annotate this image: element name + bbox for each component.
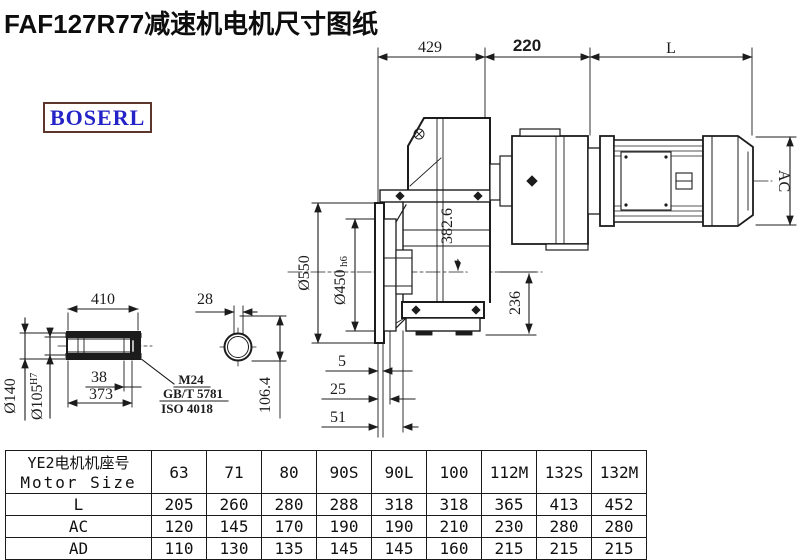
table-row-AC: AC 120 145 170 190 190 210 230 280 280	[6, 516, 647, 538]
cell: 160	[427, 538, 482, 560]
dim-550: Ø550	[296, 255, 313, 291]
col-header: 132M	[592, 451, 647, 494]
note-gbt-5781: GB/T 5781	[163, 386, 223, 401]
cell: 210	[427, 516, 482, 538]
cell: 170	[262, 516, 317, 538]
dim-373: 373	[89, 386, 113, 403]
dim-105: Ø105	[29, 384, 46, 420]
dim-382-6: 382.6	[439, 208, 456, 244]
cell: 190	[372, 516, 427, 538]
col-header: 71	[207, 451, 262, 494]
cell: 110	[152, 538, 207, 560]
dim-429: 429	[418, 39, 442, 56]
cell: 318	[372, 494, 427, 516]
cell: 288	[317, 494, 372, 516]
motor-fan-cover	[703, 136, 753, 226]
cell: 280	[537, 516, 592, 538]
cell: 413	[537, 494, 592, 516]
dim-25: 25	[330, 381, 346, 398]
table-header-en: Motor Size	[6, 473, 151, 492]
cell: 135	[262, 538, 317, 560]
col-header: 80	[262, 451, 317, 494]
col-header: 100	[427, 451, 482, 494]
col-header: 90S	[317, 451, 372, 494]
dim-28: 28	[197, 291, 213, 308]
hollow-shaft-view	[67, 332, 140, 359]
r77-input-unit	[490, 129, 588, 250]
dim-140: Ø140	[2, 378, 19, 414]
dim-51: 51	[330, 409, 346, 426]
cell: 145	[317, 538, 372, 560]
dim-5: 5	[338, 353, 346, 370]
cell: 280	[592, 516, 647, 538]
dim-106-4: 106.4	[257, 377, 274, 413]
table-row-AD: AD 110 130 135 145 145 160 215 215 215	[6, 538, 647, 560]
col-header: 63	[152, 451, 207, 494]
note-iso-4018: ISO 4018	[161, 401, 213, 416]
dim-220: 220	[513, 36, 541, 55]
col-header: 132S	[537, 451, 592, 494]
dimension-extension-lines	[20, 48, 796, 437]
cell: 215	[592, 538, 647, 560]
shaft-section-view	[225, 334, 252, 361]
cell: 215	[482, 538, 537, 560]
dim-AC: AC	[775, 170, 792, 192]
cell: 205	[152, 494, 207, 516]
cell: 260	[207, 494, 262, 516]
cell: 365	[482, 494, 537, 516]
technical-drawing: 429 220 L AC Ø550 Ø450 h6 382.6 236 5 25…	[0, 0, 800, 460]
table-header-row: YE2电机机座号 Motor Size 63 71 80 90S 90L 100…	[6, 451, 647, 494]
dimension-lines	[25, 57, 790, 427]
cell: 145	[207, 516, 262, 538]
dim-410: 410	[91, 291, 115, 308]
cell: 120	[152, 516, 207, 538]
col-header: 112M	[482, 451, 537, 494]
cell: 452	[592, 494, 647, 516]
motor-size-table: YE2电机机座号 Motor Size 63 71 80 90S 90L 100…	[5, 450, 647, 560]
cell: 190	[317, 516, 372, 538]
cell: 280	[262, 494, 317, 516]
col-header: 90L	[372, 451, 427, 494]
cell: 130	[207, 538, 262, 560]
row-label: AD	[6, 538, 152, 560]
table-header-cn: YE2电机机座号	[6, 453, 151, 473]
cell: 318	[427, 494, 482, 516]
table-row-L: L 205 260 280 288 318 318 365 413 452	[6, 494, 647, 516]
dim-450: Ø450	[332, 269, 349, 305]
table-header-motor-size: YE2电机机座号 Motor Size	[6, 451, 152, 494]
dim-38: 38	[91, 369, 107, 386]
cell: 215	[537, 538, 592, 560]
row-label: L	[6, 494, 152, 516]
row-label: AC	[6, 516, 152, 538]
cell: 230	[482, 516, 537, 538]
cell: 145	[372, 538, 427, 560]
dim-450-tolerance: h6	[338, 256, 350, 268]
dim-236: 236	[507, 291, 524, 315]
dim-105-tolerance: H7	[29, 373, 40, 385]
note-thread-m24: M24	[178, 372, 204, 387]
dim-L: L	[666, 40, 676, 57]
dimension-text: 429 220 L AC Ø550 Ø450 h6 382.6 236 5 25…	[2, 36, 792, 426]
